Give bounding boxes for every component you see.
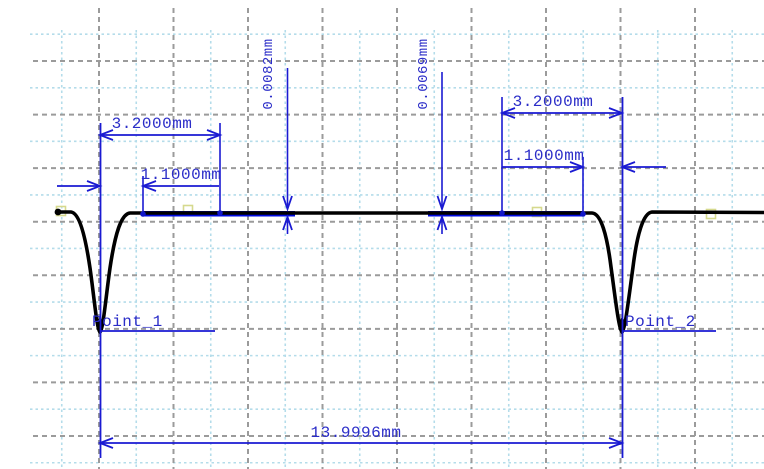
point-1-label: Point_1 bbox=[92, 313, 163, 331]
dim-label-zone-width-right: 3.2000mm bbox=[513, 93, 594, 111]
dim-label-total-distance: 13.9996mm bbox=[311, 424, 402, 442]
dim-label-step-height-left: 0.0082mm bbox=[261, 38, 277, 109]
dimension-zone-width-left: 3.2000mm bbox=[100, 115, 220, 140]
dim-label-zone-width-left: 3.2000mm bbox=[112, 115, 193, 133]
major-grid bbox=[33, 8, 764, 469]
minor-grid bbox=[30, 30, 764, 469]
dimension-edge-offset-left: 1.1000mm bbox=[57, 166, 221, 191]
point-2-label: Point_2 bbox=[625, 313, 696, 331]
dim-label-edge-offset-right: 1.1000mm bbox=[504, 147, 585, 165]
dim-label-edge-offset-left: 1.1000mm bbox=[141, 166, 222, 184]
dim-label-step-height-right: 0.0069mm bbox=[416, 38, 432, 109]
profile-measurement-canvas: 3.2000mm 1.1000mm 0.0082mm 0.0069mm 3.20… bbox=[0, 0, 764, 469]
profile-plot: 3.2000mm 1.1000mm 0.0082mm 0.0069mm 3.20… bbox=[0, 0, 764, 469]
